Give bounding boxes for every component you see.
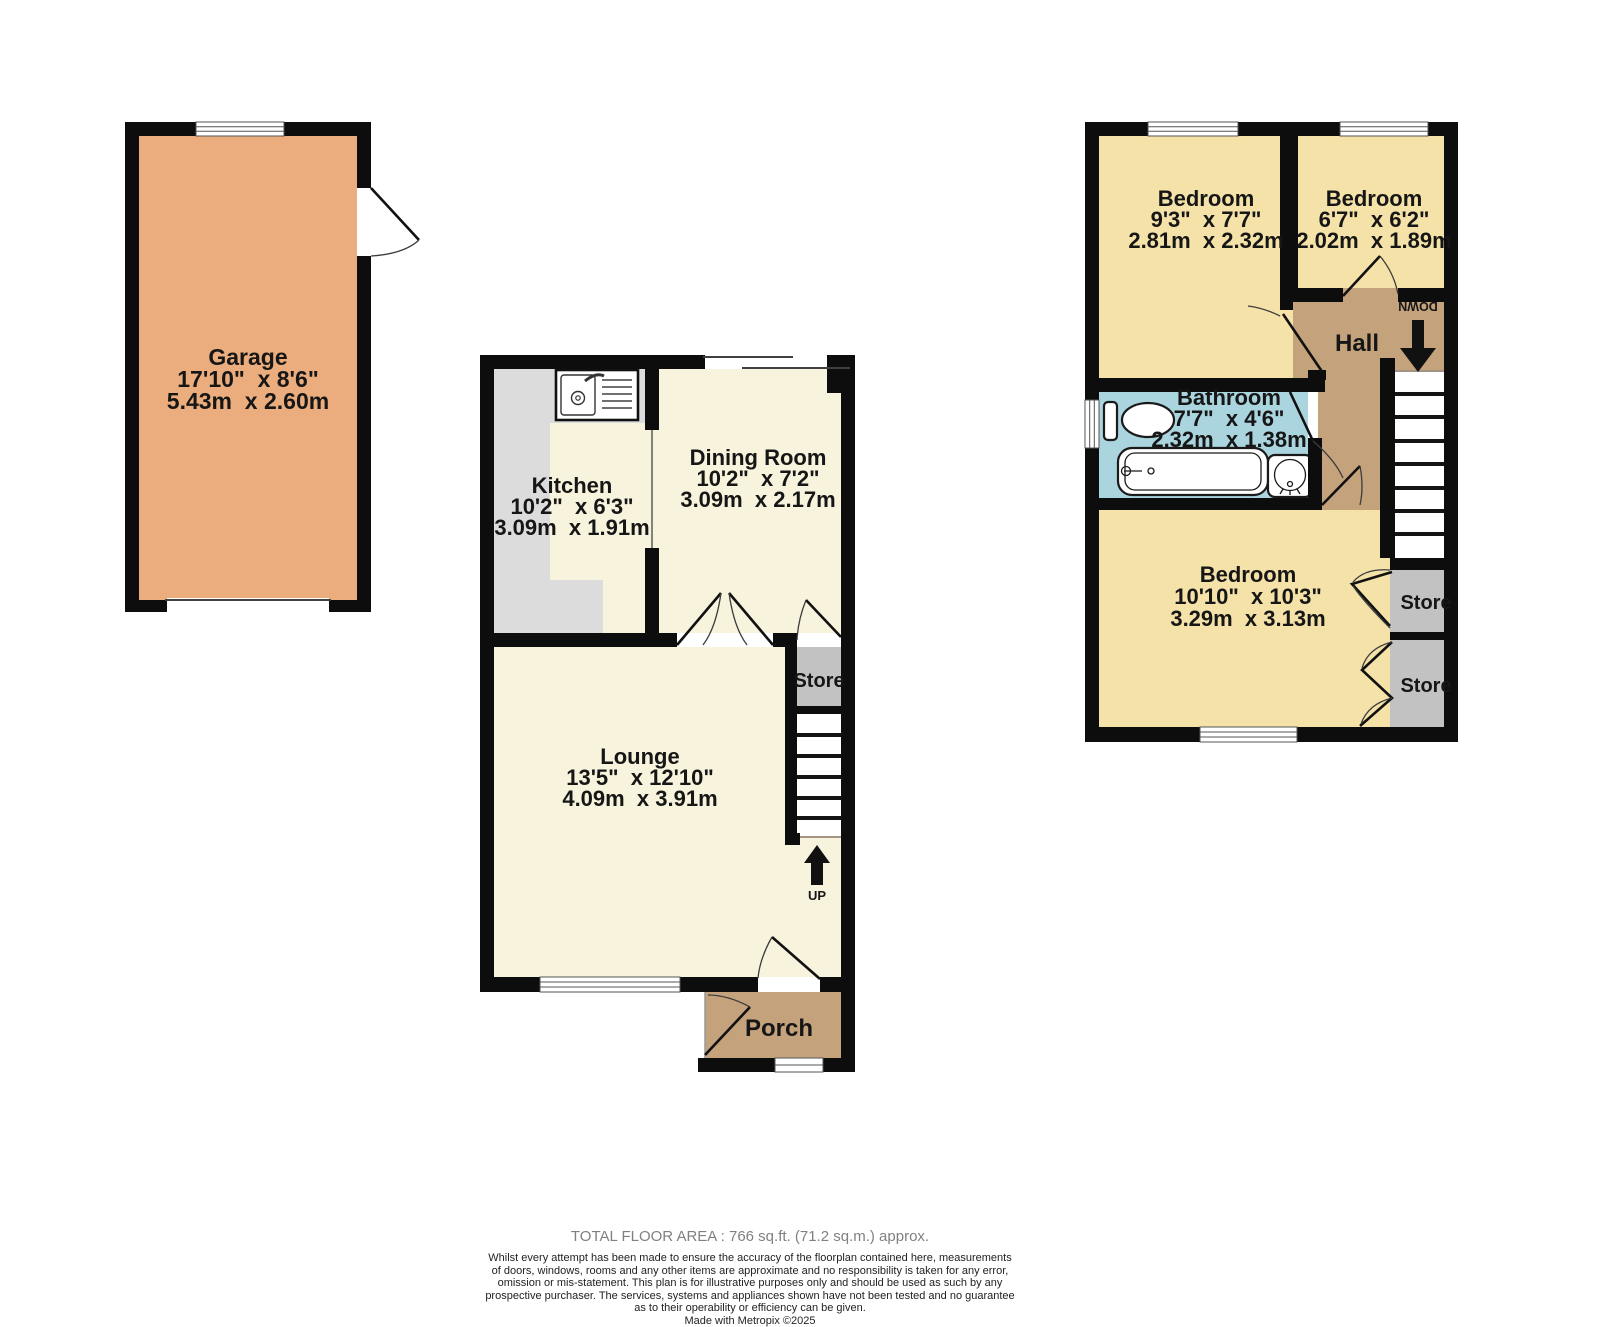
dining-room-dims-metric: 3.09m x 2.17m [680, 487, 835, 512]
kitchen-dims-metric: 3.09m x 1.91m [494, 515, 649, 540]
first-floor-plan: Bedroom 9'3" x 7'7" 2.81m x 2.32m Bedroo… [1085, 122, 1458, 742]
stairs-down [1395, 370, 1444, 558]
disclaimer-line: omission or mis-statement. This plan is … [250, 1277, 1250, 1290]
window [540, 977, 680, 992]
window [775, 1058, 823, 1072]
ground-floor-plan: Kitchen 10'2" x 6'3" 3.09m x 1.91m Dinin… [480, 355, 855, 1072]
door-swing [371, 188, 419, 256]
disclaimer-line: Whilst every attempt has been made to en… [250, 1252, 1250, 1265]
footer: TOTAL FLOOR AREA : 766 sq.ft. (71.2 sq.m… [250, 1228, 1250, 1327]
floorplan-page: Garage 17'10" x 8'6" 5.43m x 2.60m [0, 0, 1600, 1327]
metropix-credit: Made with Metropix ©2025 [250, 1315, 1250, 1327]
window [1085, 400, 1099, 448]
stairs-up [797, 714, 841, 838]
hall-label: Hall [1335, 330, 1379, 357]
down-label: DOWN [1398, 299, 1438, 313]
bathroom-dims-metric: 2.32m x 1.38m [1151, 427, 1306, 452]
bathtub-icon [1118, 448, 1268, 495]
floorplan-canvas: Garage 17'10" x 8'6" 5.43m x 2.60m [0, 0, 1600, 1190]
bedroom-small-dims-metric: 2.02m x 1.89m [1296, 228, 1451, 253]
disclaimer-line: as to their operability or efficiency ca… [250, 1302, 1250, 1315]
window [1200, 727, 1297, 742]
window [196, 122, 284, 136]
disclaimer-line: of doors, windows, rooms and any other i… [250, 1265, 1250, 1278]
garage-floorplan: Garage 17'10" x 8'6" 5.43m x 2.60m [125, 122, 419, 612]
garage-side-door-opening [357, 188, 371, 256]
up-label: UP [808, 888, 826, 903]
disclaimer-line: prospective purchaser. The services, sys… [250, 1290, 1250, 1303]
store1-label: Store [1400, 592, 1451, 614]
bedroom-front-dims-metric: 2.81m x 2.32m [1128, 228, 1283, 253]
ground-store-label: Store [793, 670, 844, 692]
total-floor-area: TOTAL FLOOR AREA : 766 sq.ft. (71.2 sq.m… [250, 1228, 1250, 1245]
window [1148, 122, 1238, 136]
lounge-dims-metric: 4.09m x 3.91m [562, 786, 717, 811]
window [1340, 122, 1428, 136]
garage-dims-metric: 5.43m x 2.60m [167, 388, 329, 414]
kitchen-sink-icon [556, 370, 638, 420]
basin-icon [1268, 455, 1312, 497]
bedroom-back-dims-metric: 3.29m x 3.13m [1170, 606, 1325, 631]
store2-label: Store [1400, 675, 1451, 697]
porch-label: Porch [745, 1015, 813, 1042]
